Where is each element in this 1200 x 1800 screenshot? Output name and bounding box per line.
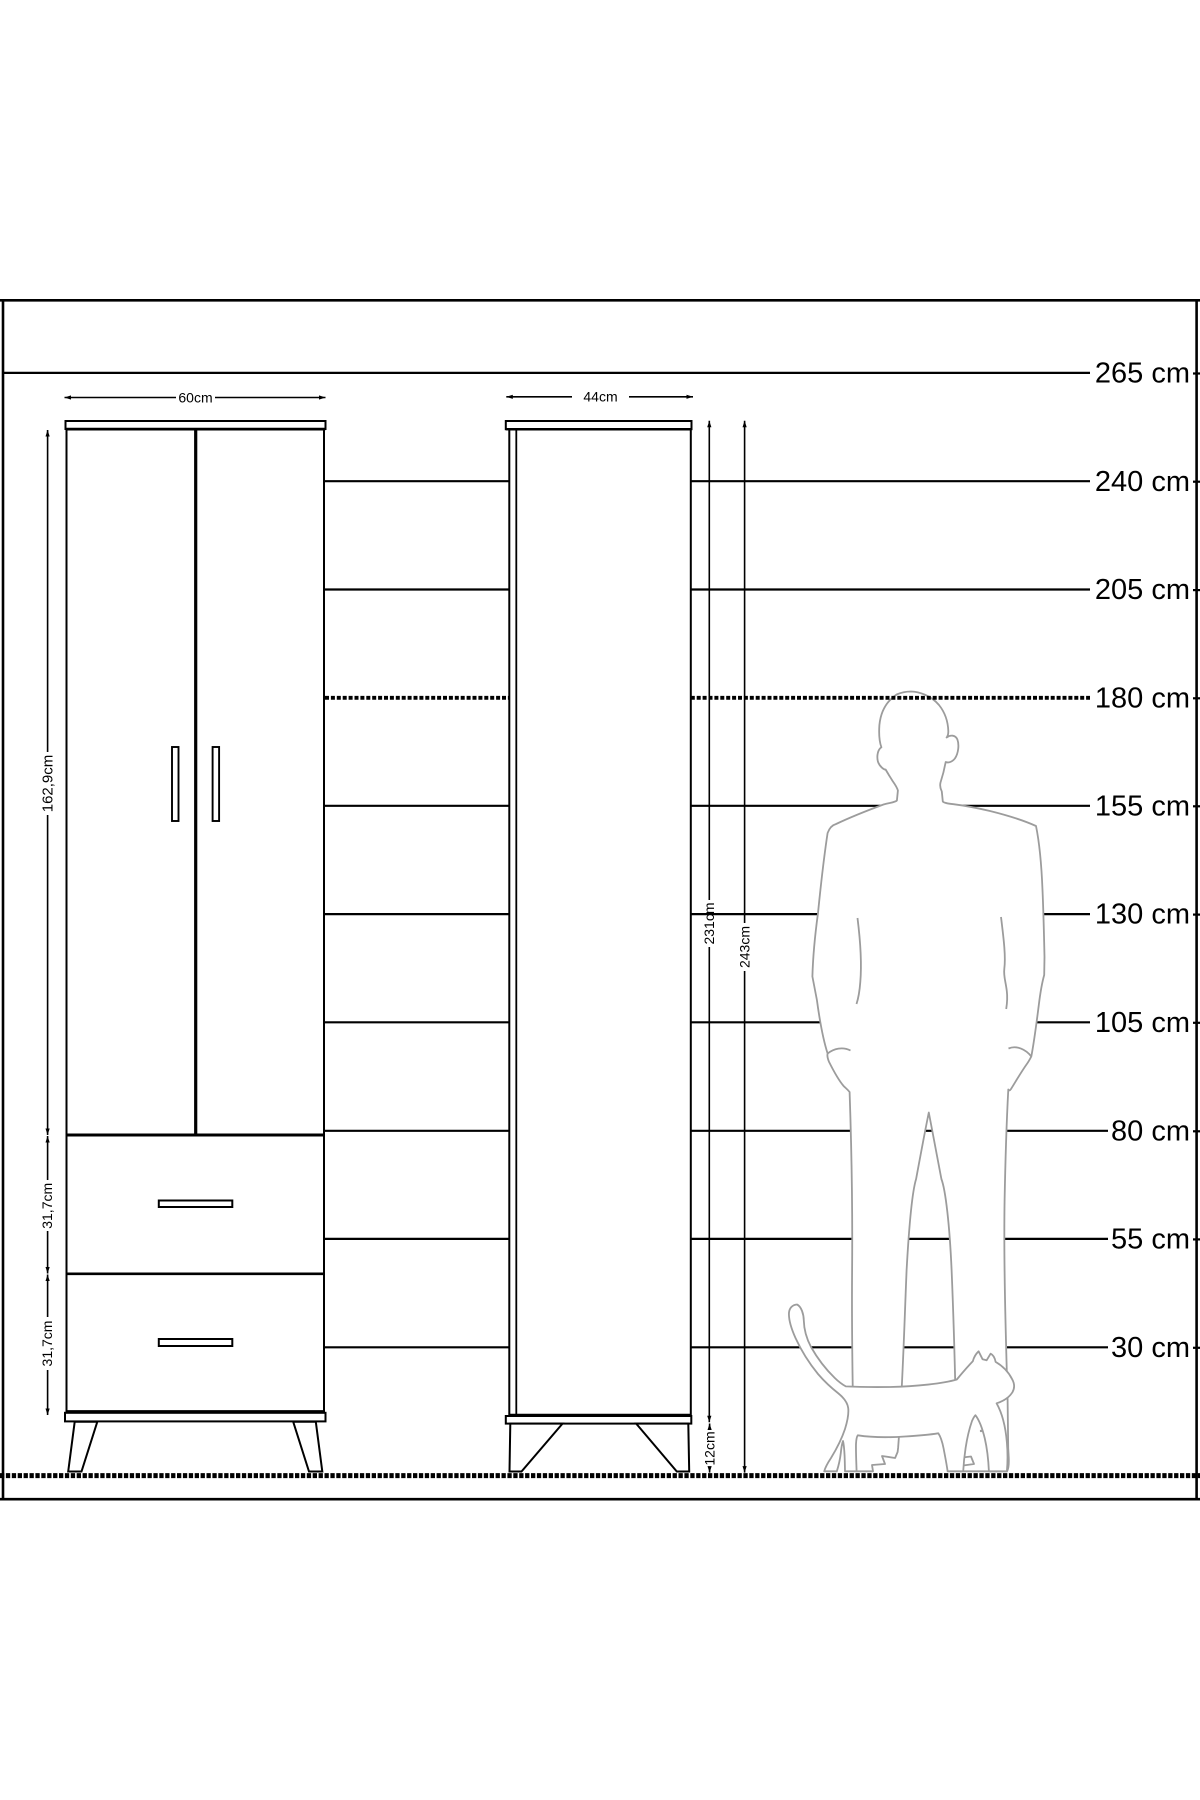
svg-text:180 cm: 180 cm <box>1095 682 1190 714</box>
svg-text:12cm: 12cm <box>701 1431 717 1465</box>
svg-text:30 cm: 30 cm <box>1111 1332 1190 1364</box>
svg-text:44cm: 44cm <box>583 389 617 405</box>
svg-text:155 cm: 155 cm <box>1095 790 1190 822</box>
svg-text:105 cm: 105 cm <box>1095 1007 1190 1039</box>
svg-text:80 cm: 80 cm <box>1111 1115 1190 1147</box>
svg-text:31,7cm: 31,7cm <box>39 1183 55 1229</box>
svg-text:130 cm: 130 cm <box>1095 899 1190 931</box>
svg-text:162,9cm: 162,9cm <box>39 755 56 813</box>
svg-text:265 cm: 265 cm <box>1095 358 1190 390</box>
svg-text:231cm: 231cm <box>701 902 717 944</box>
svg-text:55 cm: 55 cm <box>1111 1223 1190 1255</box>
svg-text:205 cm: 205 cm <box>1095 574 1190 606</box>
svg-text:60cm: 60cm <box>178 389 212 405</box>
svg-text:240 cm: 240 cm <box>1095 466 1190 498</box>
svg-text:243cm: 243cm <box>736 926 752 968</box>
svg-text:31,7cm: 31,7cm <box>39 1321 55 1367</box>
